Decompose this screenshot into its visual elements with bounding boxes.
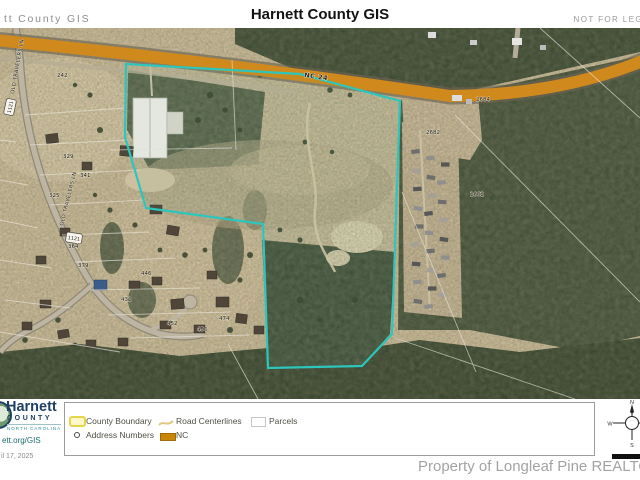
address-number-label: 2682 (426, 130, 440, 136)
address-number-label: 474 (219, 316, 230, 322)
realtor-watermark: Property of Longleaf Pine REALTORS (418, 458, 640, 475)
address-number-label: 452 (167, 321, 178, 327)
address-number-label: 341 (80, 173, 91, 179)
blue-roof-house (94, 280, 107, 290)
address-number-label: 329 (63, 154, 74, 160)
compass-rose: N W S (600, 398, 640, 448)
county-logo-name: Harnett (6, 399, 57, 415)
address-number-label: 364 (68, 244, 79, 250)
compass-south-label: S (630, 443, 634, 448)
legend-label-county-boundary: County Boundary (86, 416, 152, 426)
county-logo-region: NORTH CAROLINA (7, 424, 61, 431)
header-bar: tt County GIS Harnett County GIS NOT FOR… (0, 0, 640, 28)
address-number-label: 432 (121, 297, 132, 303)
address-number-label: 2684 (476, 97, 490, 103)
parcel-swatch (251, 417, 266, 427)
address-number-label: 242 (57, 73, 68, 79)
gis-page: tt County GIS Harnett County GIS NOT FOR… (0, 0, 640, 480)
compass-west-label: W (607, 422, 613, 428)
address-number-label: 456 (197, 327, 208, 333)
legend-label-road-centerlines: Road Centerlines (176, 416, 242, 426)
road-centerline-swatch (158, 415, 174, 433)
legend-label-nc: NC (176, 430, 188, 440)
nc-road-swatch (160, 433, 176, 441)
compass-north-label: N (630, 400, 634, 406)
legend-label-address-numbers: Address Numbers (86, 430, 154, 440)
county-boundary-swatch (69, 416, 86, 427)
legend-label-parcels: Parcels (269, 416, 297, 426)
website-link[interactable]: ett.org/GIS (2, 436, 41, 445)
address-number-label: 379 (78, 263, 89, 269)
map-canvas[interactable]: NC 24 11211121 OLD TRAVELERS LNOLD TRAVE… (0, 28, 640, 399)
address-number-label: 325 (49, 193, 60, 199)
map-date: il 17, 2025 (1, 453, 33, 460)
address-number-dot-icon (74, 432, 80, 438)
address-number-label: 2662 (470, 192, 484, 198)
page-title: Harnett County GIS (0, 6, 640, 23)
aerial-map[interactable]: NC 24 11211121 OLD TRAVELERS LNOLD TRAVE… (0, 28, 640, 399)
county-logo-subtitle: COUNTY (7, 415, 52, 422)
route-shield: 1121 (65, 232, 82, 244)
legend-box: County Boundary Road Centerlines Parcels… (64, 402, 595, 456)
address-number-label: 446 (141, 271, 152, 277)
disclaimer-text: NOT FOR LEG (574, 15, 640, 24)
